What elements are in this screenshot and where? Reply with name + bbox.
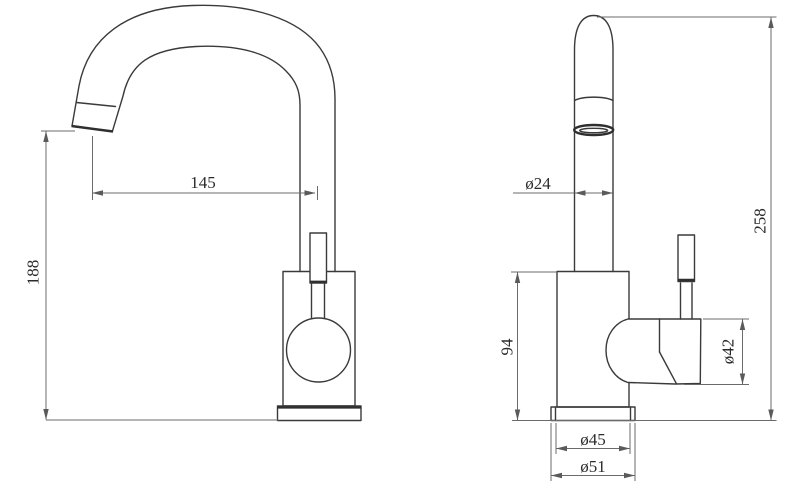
handle-lever-front (678, 235, 695, 282)
handle-stem-front (681, 283, 693, 319)
handle-housing-circle (287, 318, 351, 382)
dim-label-base-outer: ø51 (580, 457, 606, 476)
side-view (72, 5, 362, 420)
side-view-dimensions: 188 145 (24, 131, 318, 420)
dim-label-body-height: 94 (498, 338, 517, 356)
spout-inner-curve (113, 46, 301, 271)
aerator-ring-inner (580, 128, 608, 132)
nozzle-outlet-edge (72, 126, 114, 132)
nozzle-joint-line (77, 103, 116, 107)
base-flange-front (551, 407, 635, 421)
dim-label-spout-reach: 145 (190, 173, 216, 192)
spout-cap-joint-line (575, 97, 614, 100)
dim-label-handle-diameter: ø42 (719, 339, 738, 365)
front-view-dimensions: ø24 258 94 ø42 ø45 ø51 (498, 17, 777, 481)
handle-lever-side (310, 233, 327, 283)
dim-label-overall-height: 258 (751, 208, 770, 234)
dim-label-spout-outlet-height: 188 (24, 260, 43, 286)
base-flange-inner-lines (556, 407, 631, 421)
front-view (551, 16, 701, 421)
spout-outer-curve (72, 5, 335, 271)
handle-housing-front (606, 319, 701, 384)
spout-tube-front (575, 16, 614, 272)
drawing-canvas: 188 145 ø24 258 (0, 0, 800, 487)
dim-label-tube-diameter: ø24 (525, 174, 551, 193)
dim-label-base-inner: ø45 (580, 430, 606, 449)
faucet-body-side (283, 272, 355, 407)
drawing-page: 188 145 ø24 258 (0, 0, 800, 487)
handle-stem-side (312, 283, 325, 319)
